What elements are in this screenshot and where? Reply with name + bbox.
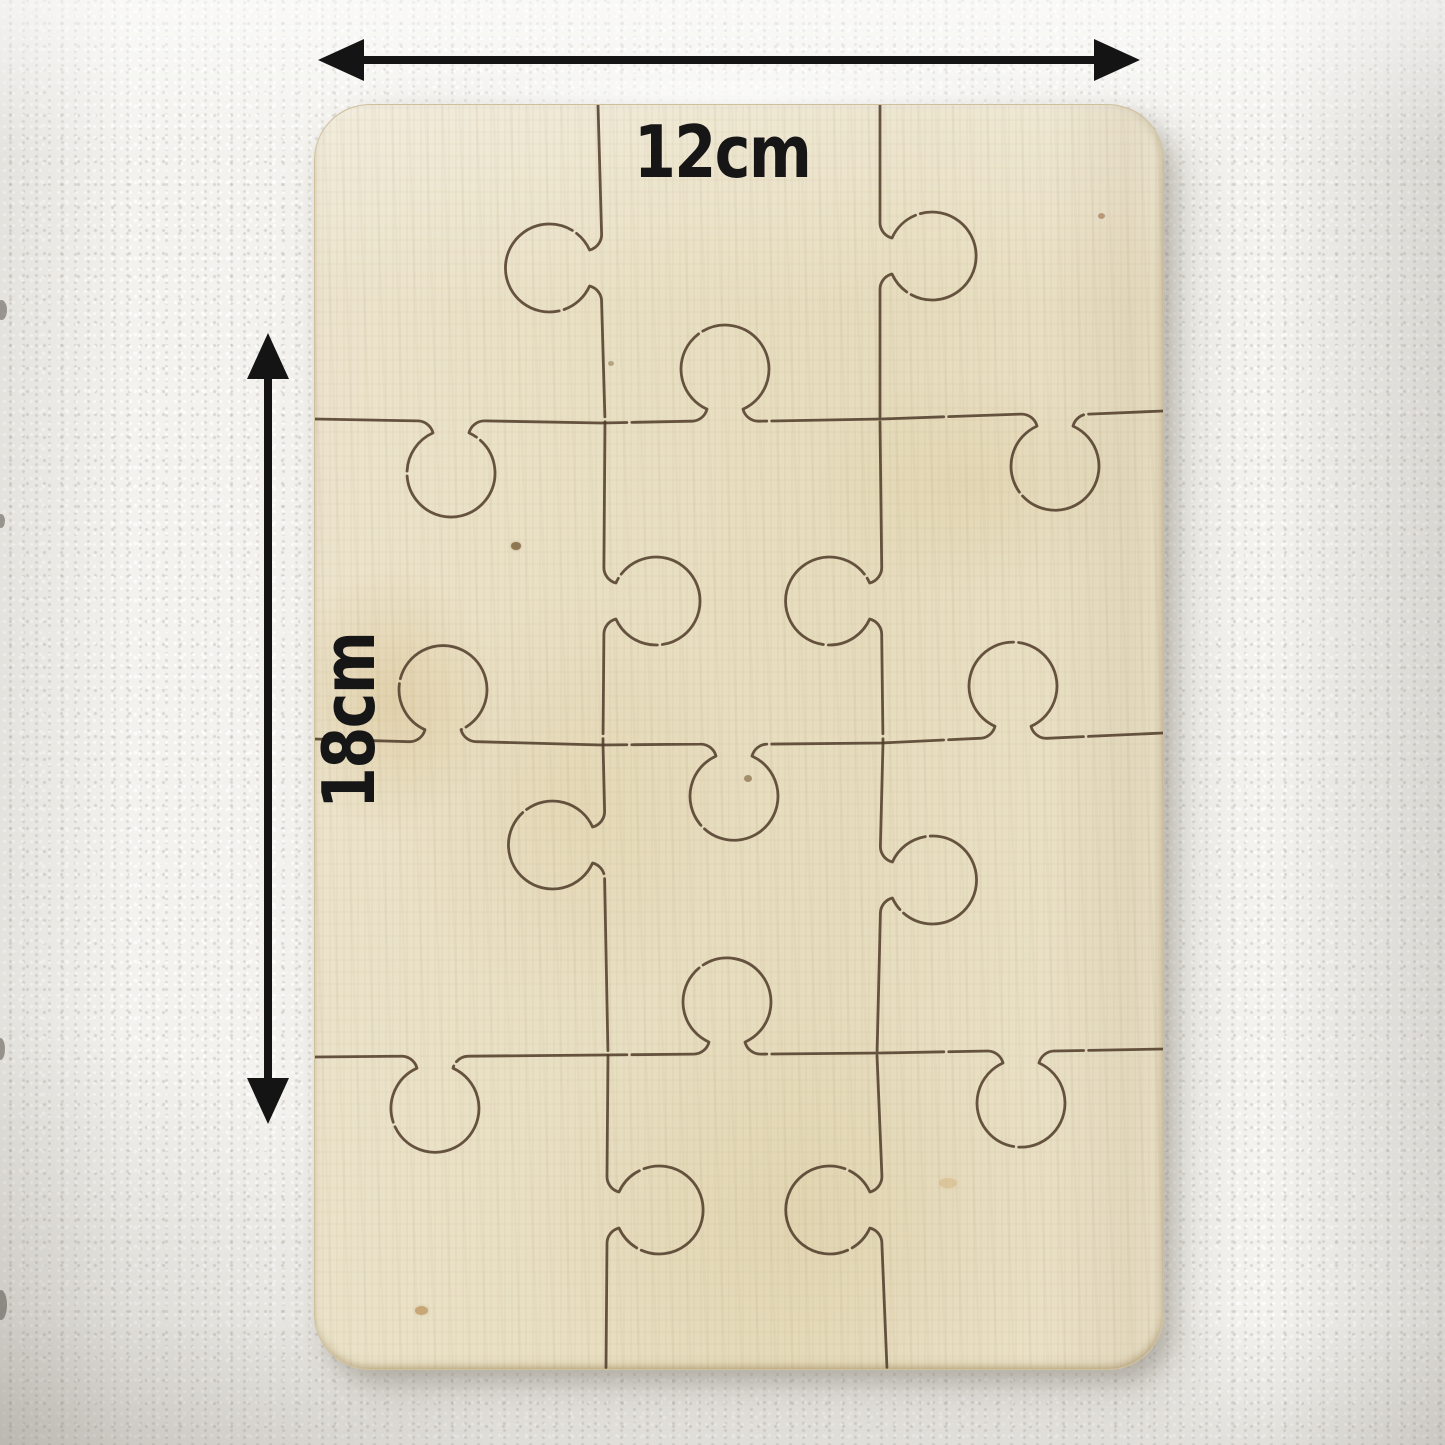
height-arrow <box>246 333 290 1124</box>
vertical-cut-1 <box>505 105 703 1369</box>
wood-speck <box>1098 213 1105 219</box>
width-dimension-label: 12cm <box>634 116 810 188</box>
width-arrow-shaft <box>350 56 1108 64</box>
wood-knot <box>744 775 752 782</box>
puzzle-cut-lines <box>315 105 1163 1369</box>
wood-knot <box>511 542 521 550</box>
arrowhead-down-icon <box>247 1078 289 1124</box>
wood-stain <box>415 1306 428 1315</box>
horizontal-cut-2 <box>315 642 1163 840</box>
horizontal-cut-1 <box>315 325 1163 517</box>
horizontal-cut-3 <box>315 958 1163 1152</box>
width-arrow <box>318 38 1140 82</box>
height-arrow-shaft <box>264 365 272 1092</box>
wood-speck <box>608 361 614 366</box>
arrowhead-right-icon <box>1094 39 1140 81</box>
product-photo-scene: 12cm 18cm <box>0 0 1445 1445</box>
puzzle-board <box>314 104 1164 1370</box>
height-dimension-label: 18cm <box>313 633 385 809</box>
wood-stain <box>939 1178 957 1188</box>
